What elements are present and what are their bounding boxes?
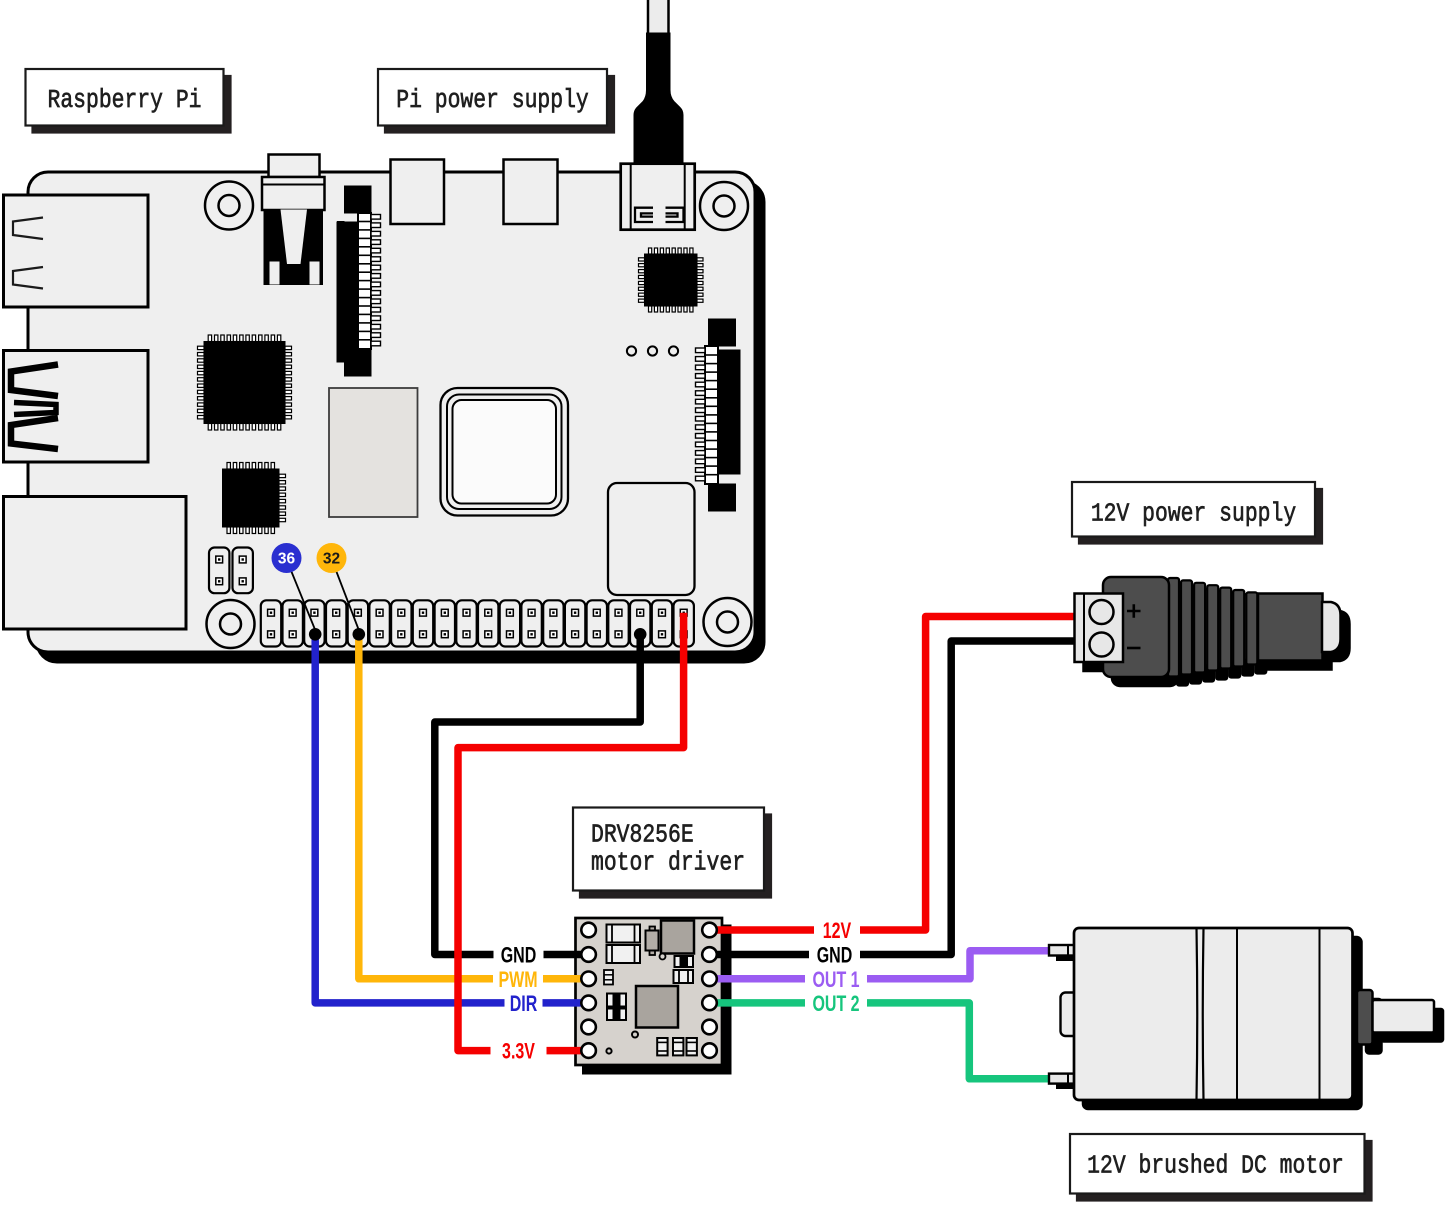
svg-text:Raspberry Pi: Raspberry Pi <box>47 86 201 115</box>
svg-text:Pi power supply: Pi power supply <box>396 86 589 115</box>
svg-text:12V: 12V <box>823 918 851 943</box>
svg-text:GND: GND <box>501 943 537 968</box>
svg-text:GND: GND <box>817 943 853 968</box>
svg-text:OUT 1: OUT 1 <box>812 967 859 992</box>
svg-text:36: 36 <box>278 551 296 568</box>
svg-text:PWM: PWM <box>498 967 537 992</box>
svg-text:DRV8256E: DRV8256E <box>591 821 694 850</box>
svg-text:DIR: DIR <box>510 991 538 1016</box>
svg-text:12V power supply: 12V power supply <box>1091 500 1296 529</box>
svg-text:3.3V: 3.3V <box>502 1039 535 1064</box>
svg-text:12V brushed DC motor: 12V brushed DC motor <box>1087 1152 1344 1181</box>
svg-text:motor driver: motor driver <box>591 849 745 878</box>
svg-text:32: 32 <box>323 551 340 568</box>
svg-text:OUT 2: OUT 2 <box>812 991 859 1016</box>
